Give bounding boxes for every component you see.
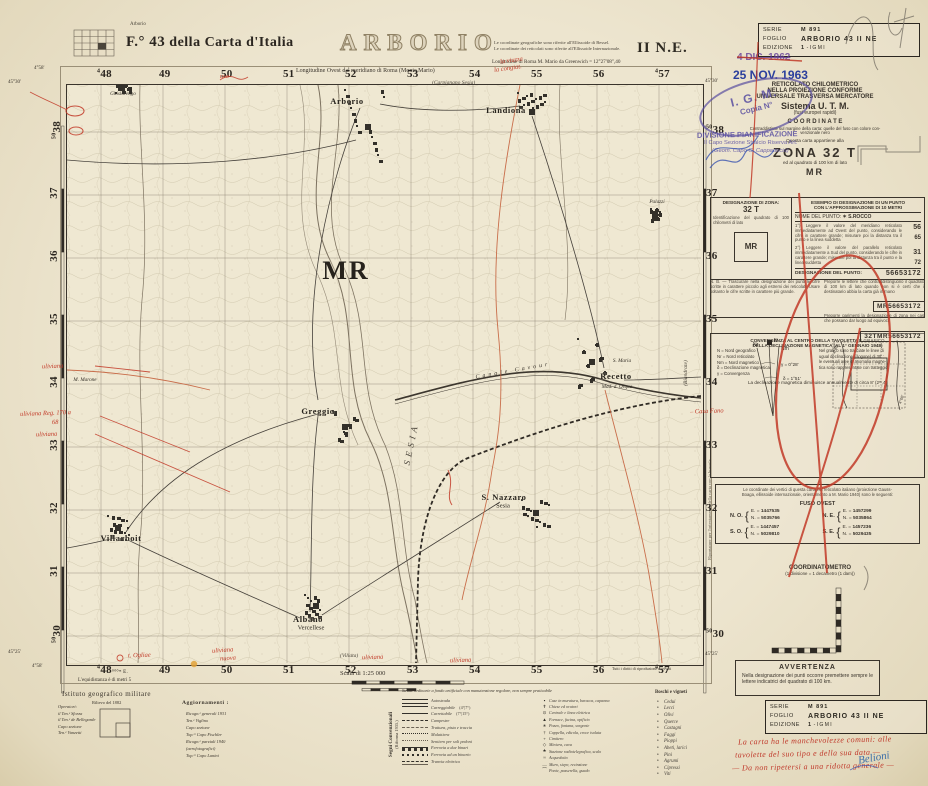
red-annotation: uliviana <box>362 654 384 662</box>
red-annotation: t. Ogliae <box>128 652 151 660</box>
firma-stamp: (Geom. Capo C. Cappadocia) <box>712 148 789 154</box>
red-annotation: uliviana Reg. 170 a <box>20 409 71 418</box>
red-annotation: uliviana <box>42 363 64 371</box>
red-annotation: – Casa Fano <box>690 407 724 415</box>
divisione-stamp: DIVISIONE PIANIFICAZIONE <box>697 129 798 140</box>
red-annotation: la congiat. <box>494 63 523 74</box>
red-annotation: uliviana <box>450 657 472 665</box>
red-annotation: uliviana <box>212 646 234 654</box>
red-annotation: uso <box>220 73 229 80</box>
map-sheet: Arborio F.° 43 della Carta d'Italia ARBO… <box>0 0 928 786</box>
capo-sezione-stamp: Il Capo Sezione Stralcio Riserva Art. <box>704 140 797 146</box>
red-annotation: uliviana <box>36 431 58 439</box>
date-stamp-old: 4 DIC. 1962 <box>737 52 790 63</box>
red-annotation: nuova <box>220 654 236 662</box>
red-annotation: 68 <box>52 419 59 426</box>
